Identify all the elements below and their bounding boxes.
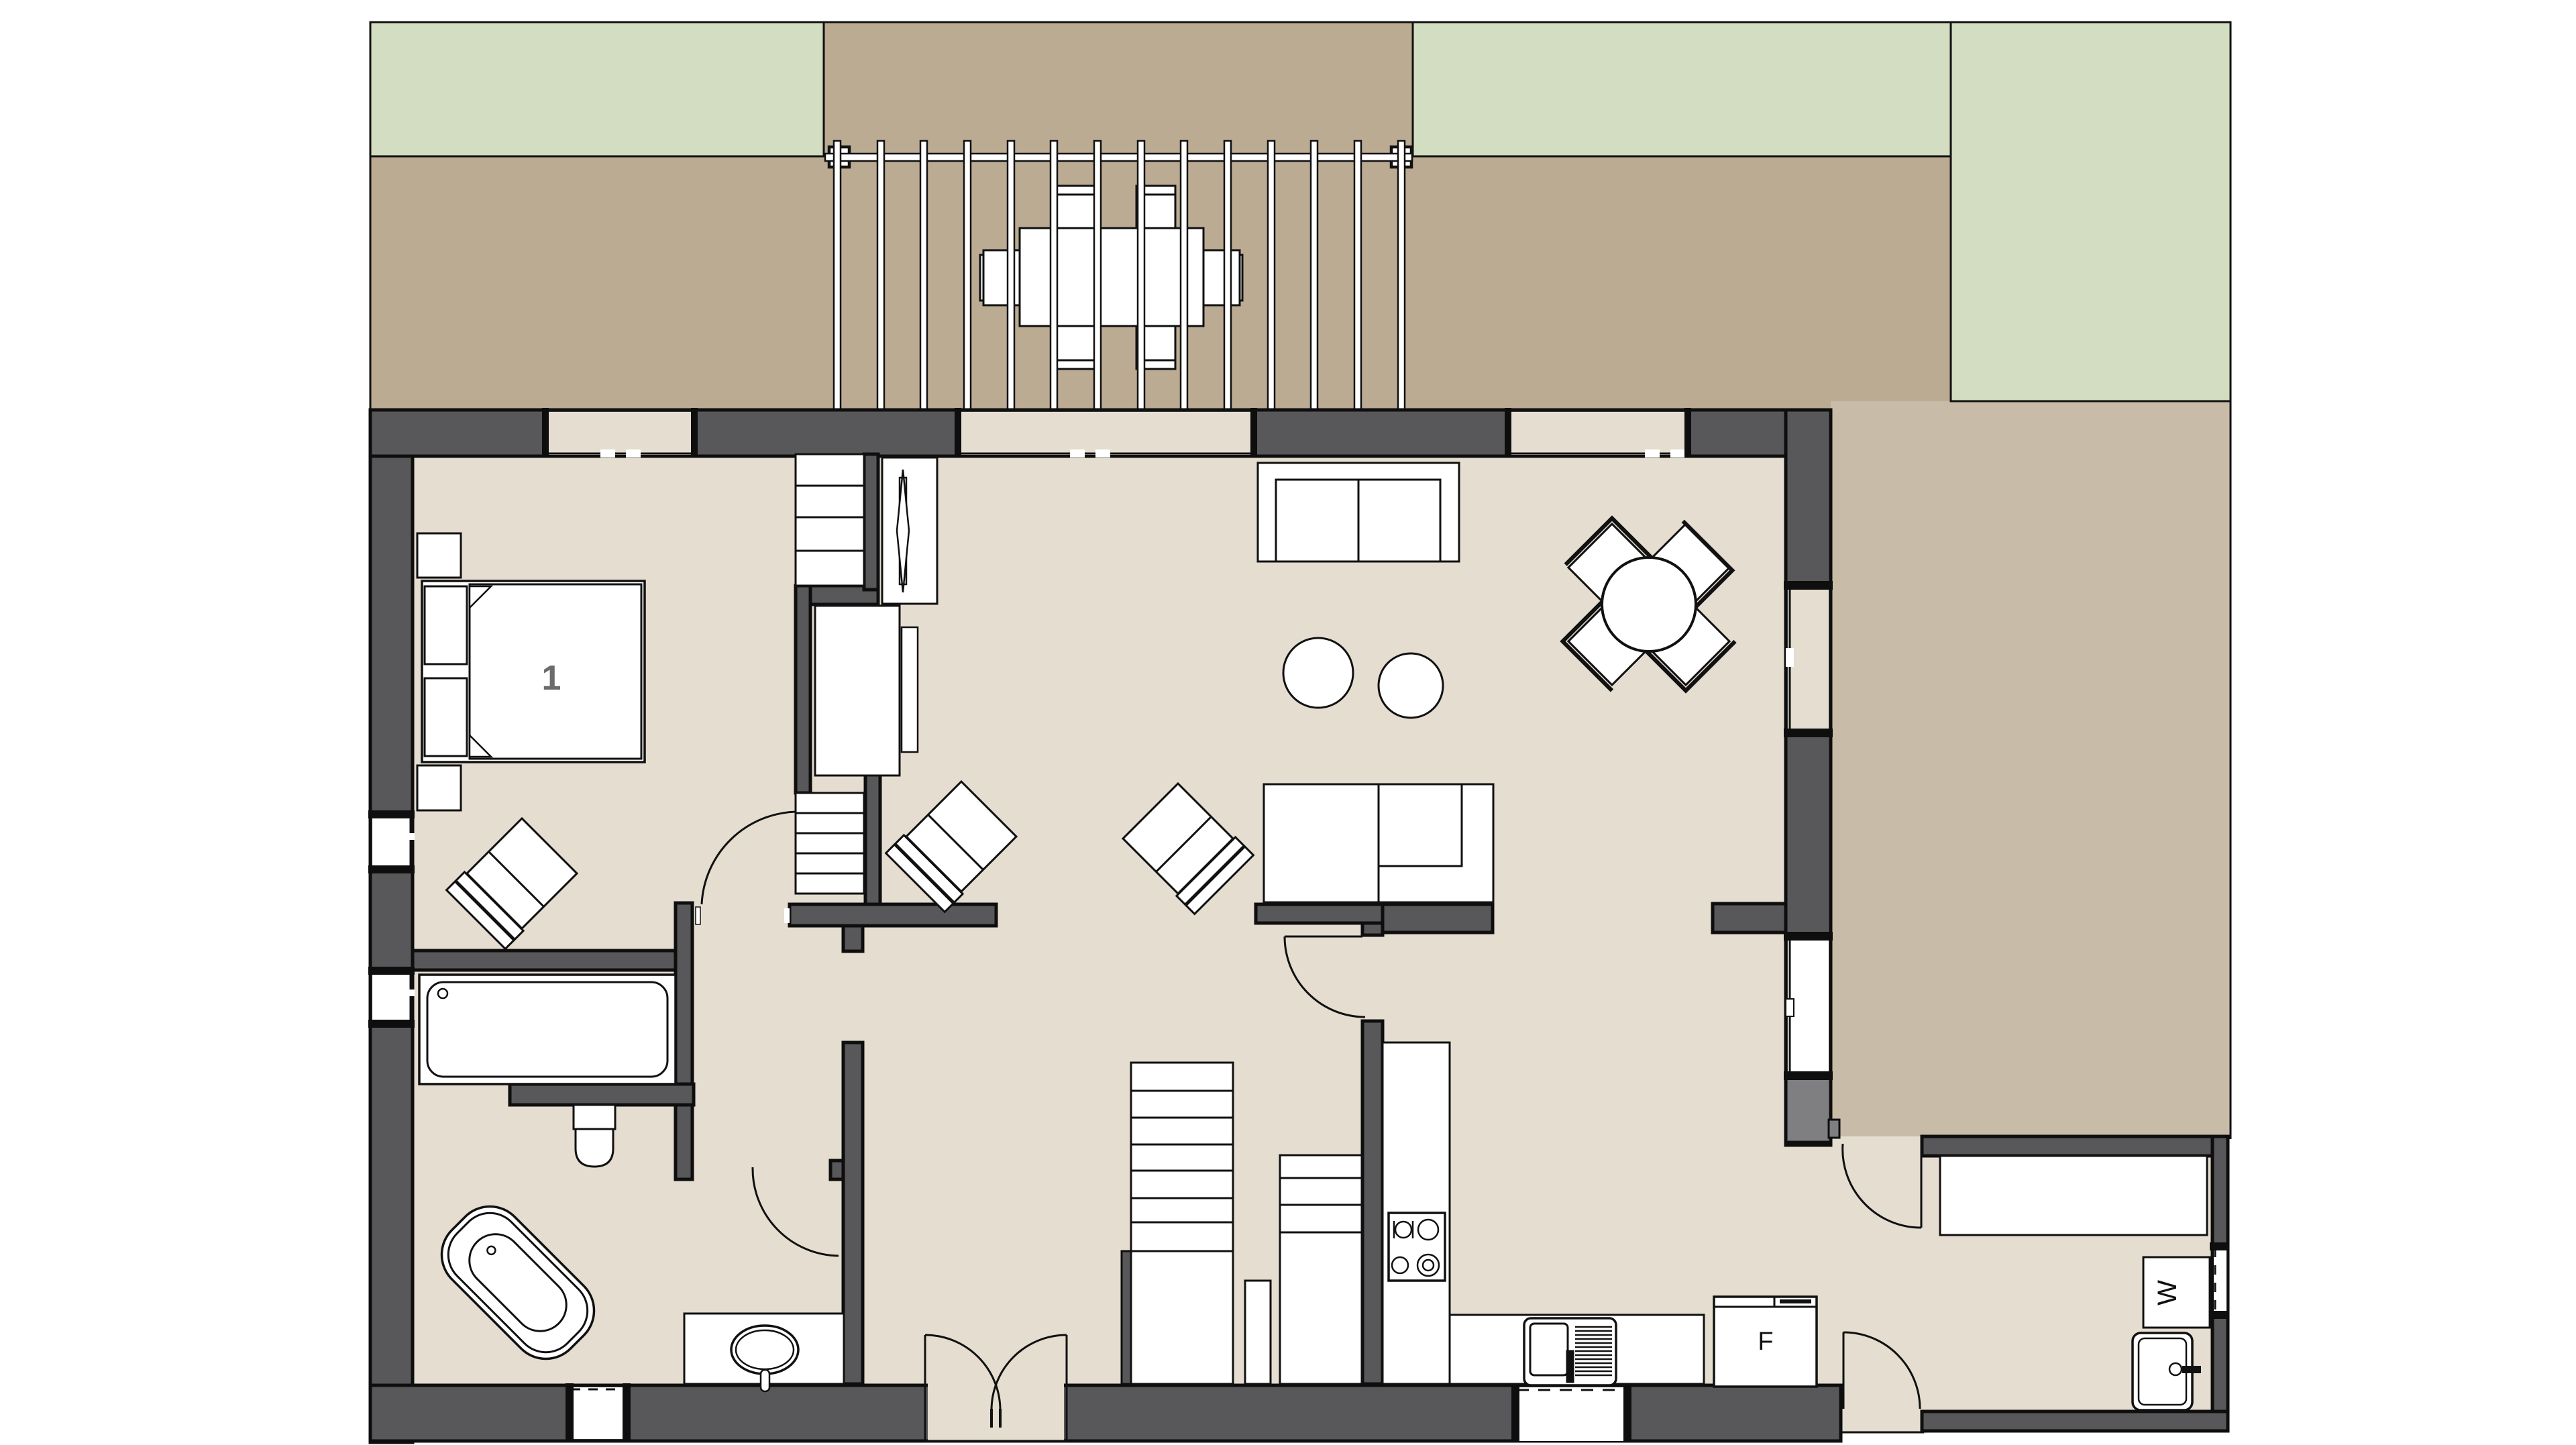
svg-text:1: 1 — [542, 659, 561, 698]
svg-text:W: W — [2153, 1280, 2182, 1305]
svg-text:F: F — [1758, 1328, 1773, 1356]
